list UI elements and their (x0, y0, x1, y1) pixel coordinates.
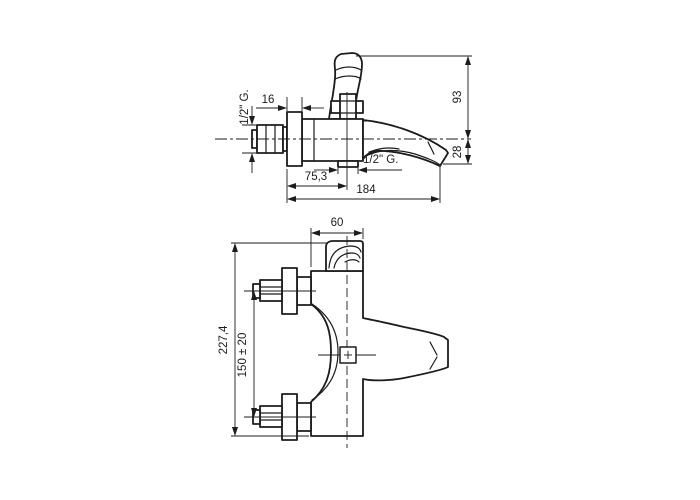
technical-drawing-page: 16 1/2" G. 93 28 (0, 0, 700, 500)
side-view: 16 1/2" G. 93 28 (215, 53, 472, 203)
dimension-label-227-4: 227,4 (218, 325, 230, 354)
side-view-bottom-outlet-port (338, 161, 358, 167)
side-view-cartridge (340, 94, 356, 119)
dimension-label-75-3: 75,3 (305, 171, 327, 183)
plan-view-dimension-150-20: 150 ± 20 (237, 291, 257, 417)
side-view-dimension-flange-depth: 16 (256, 94, 324, 111)
plan-view-square-adjuster (340, 347, 356, 363)
dimension-label-16: 16 (262, 94, 275, 106)
dimension-label-28: 28 (452, 146, 464, 159)
dimension-label-outlet-thread: 1/2" G. (363, 154, 398, 166)
bath-mixer-technical-drawing: 16 1/2" G. 93 28 (0, 0, 700, 500)
side-view-body (302, 119, 363, 161)
dimension-label-60: 60 (331, 217, 344, 229)
plan-view: 60 227,4 150 ± 20 (218, 217, 448, 448)
plan-view-body-and-spout (311, 271, 448, 436)
dimension-label-184: 184 (356, 184, 376, 196)
plan-view-handle (326, 241, 363, 271)
dimension-label-inlet-thread: 1/2" G. (239, 89, 251, 124)
dimension-label-93: 93 (452, 91, 464, 104)
dimension-label-150-20: 150 ± 20 (237, 333, 249, 378)
